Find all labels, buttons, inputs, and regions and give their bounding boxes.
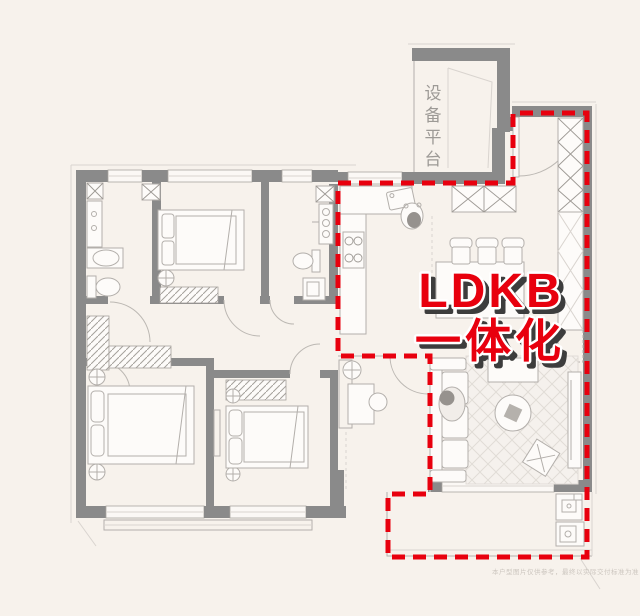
master-bedroom [87, 316, 194, 480]
living-room [430, 356, 581, 484]
watermark-text: 本户型图片仅供参考，最终以实际交付标准为准 [492, 567, 639, 576]
dining-chairs [450, 238, 524, 264]
equipment-platform-label: 设备平台 [422, 84, 442, 172]
shaft-box [142, 184, 160, 200]
annotation-line2: 一体化 [415, 315, 565, 367]
floorplan-image: 设备平台 [0, 0, 640, 616]
tv-cabinet [568, 372, 581, 468]
ldkb-annotation: LDKB LDKB 一体化 一体化 [415, 265, 570, 372]
floorplan-svg: 设备平台 [0, 0, 640, 616]
study-room [338, 356, 430, 492]
bathroom-2 [293, 186, 334, 300]
equipment-platform: 设备平台 [404, 48, 510, 184]
bedroom-2 [158, 210, 244, 303]
bottom-sill [78, 520, 312, 546]
annotation-line1: LDKB [418, 265, 563, 318]
sofa [430, 358, 468, 482]
bedroom-3 [214, 380, 308, 481]
bathroom-1 [87, 183, 123, 298]
